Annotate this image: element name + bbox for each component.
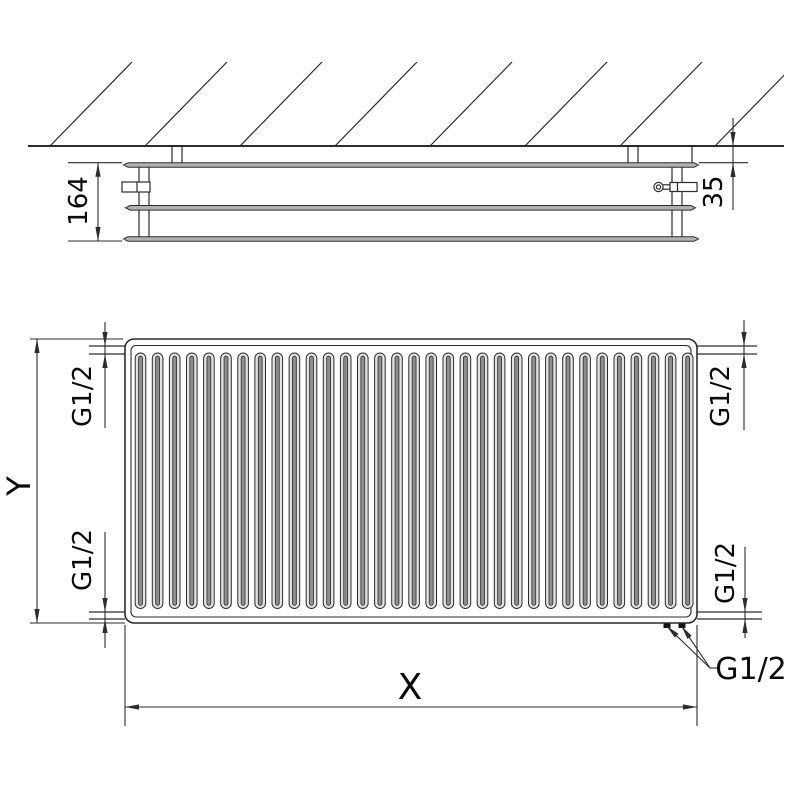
- conn-bottom-outlets-label: G1/2: [715, 655, 787, 685]
- header-pipes: [139, 167, 682, 237]
- conn-top-right-label: G1/2: [708, 365, 734, 427]
- conn-top-left-label: G1/2: [70, 365, 96, 427]
- radiator-panels-top: [124, 163, 699, 242]
- height-axis-label: Y: [3, 476, 35, 496]
- air-vent-valve: [654, 182, 697, 191]
- panel-3: [124, 237, 699, 242]
- dim-conn-bottom-right: [742, 547, 747, 638]
- leader-bottom-outlets: [667, 626, 720, 668]
- wall-clearance-dimension-label: 35: [701, 175, 727, 208]
- dim-conn-top-left: [102, 322, 107, 428]
- depth-dimension-label: 164: [66, 176, 92, 226]
- width-axis-label: X: [398, 670, 423, 706]
- conn-bottom-right-label: G1/2: [713, 542, 739, 604]
- conn-bottom-left-label: G1/2: [70, 529, 96, 591]
- top-view: [28, 62, 797, 241]
- dim-conn-top-right: [741, 320, 746, 430]
- dim-conn-bottom-left: [102, 532, 107, 648]
- wall-bracket-right: [628, 147, 692, 163]
- front-view: [30, 320, 762, 726]
- radiator-dimension-diagram: 164 35 G1/2 G1/2 G1/2 G1/2 G1/2 Y X: [0, 0, 800, 800]
- wall-bracket-left: [172, 147, 182, 163]
- panel-2: [126, 206, 696, 211]
- wall-hatching: [50, 62, 797, 146]
- panel-1: [124, 163, 699, 168]
- side-plug-left: [122, 182, 150, 192]
